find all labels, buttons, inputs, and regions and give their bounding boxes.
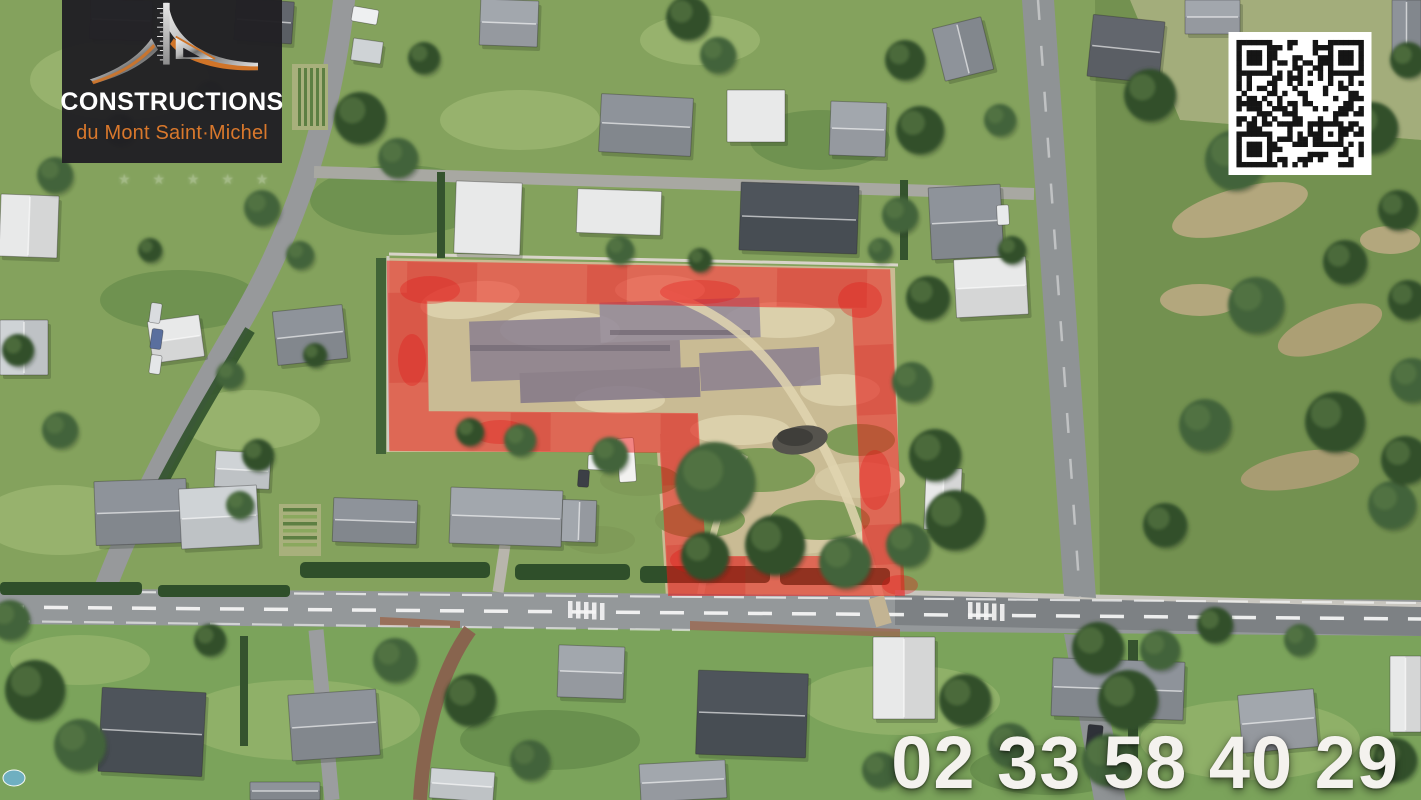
house	[350, 38, 386, 68]
house	[829, 101, 890, 161]
qr-code	[1228, 32, 1372, 175]
vehicle	[149, 354, 163, 374]
house	[928, 184, 1007, 264]
house	[429, 768, 498, 800]
house	[695, 670, 811, 762]
logo-title: CONSTRUCTIONS	[60, 90, 283, 115]
house	[557, 645, 628, 703]
house	[739, 182, 862, 258]
house	[727, 90, 788, 146]
arch-and-ruler-icon	[76, 1, 268, 87]
vehicle	[149, 302, 163, 323]
vehicle	[996, 205, 1009, 226]
pool	[3, 770, 25, 786]
house	[561, 499, 600, 546]
logo-subtitle: du Mont Saint·Michel	[76, 122, 268, 145]
house	[954, 256, 1032, 322]
house	[873, 637, 938, 723]
watermark-stars: ★ ★ ★ ★ ★	[118, 171, 277, 188]
house	[598, 94, 696, 161]
brand-logo: CONSTRUCTIONS du Mont Saint·Michel	[62, 0, 282, 163]
house	[639, 760, 730, 800]
phone-number: 02 33 58 40 29	[891, 724, 1399, 800]
house	[479, 0, 542, 51]
house	[449, 487, 566, 551]
house	[454, 181, 526, 259]
vehicle	[577, 470, 589, 488]
house	[288, 689, 384, 765]
house	[0, 194, 62, 262]
house	[98, 687, 209, 780]
house	[250, 782, 323, 800]
aerial-photo: CONSTRUCTIONS du Mont Saint·Michel ★ ★ ★…	[0, 0, 1421, 800]
house	[94, 478, 191, 549]
house	[332, 498, 421, 549]
house	[576, 189, 665, 240]
vehicle	[150, 328, 164, 349]
